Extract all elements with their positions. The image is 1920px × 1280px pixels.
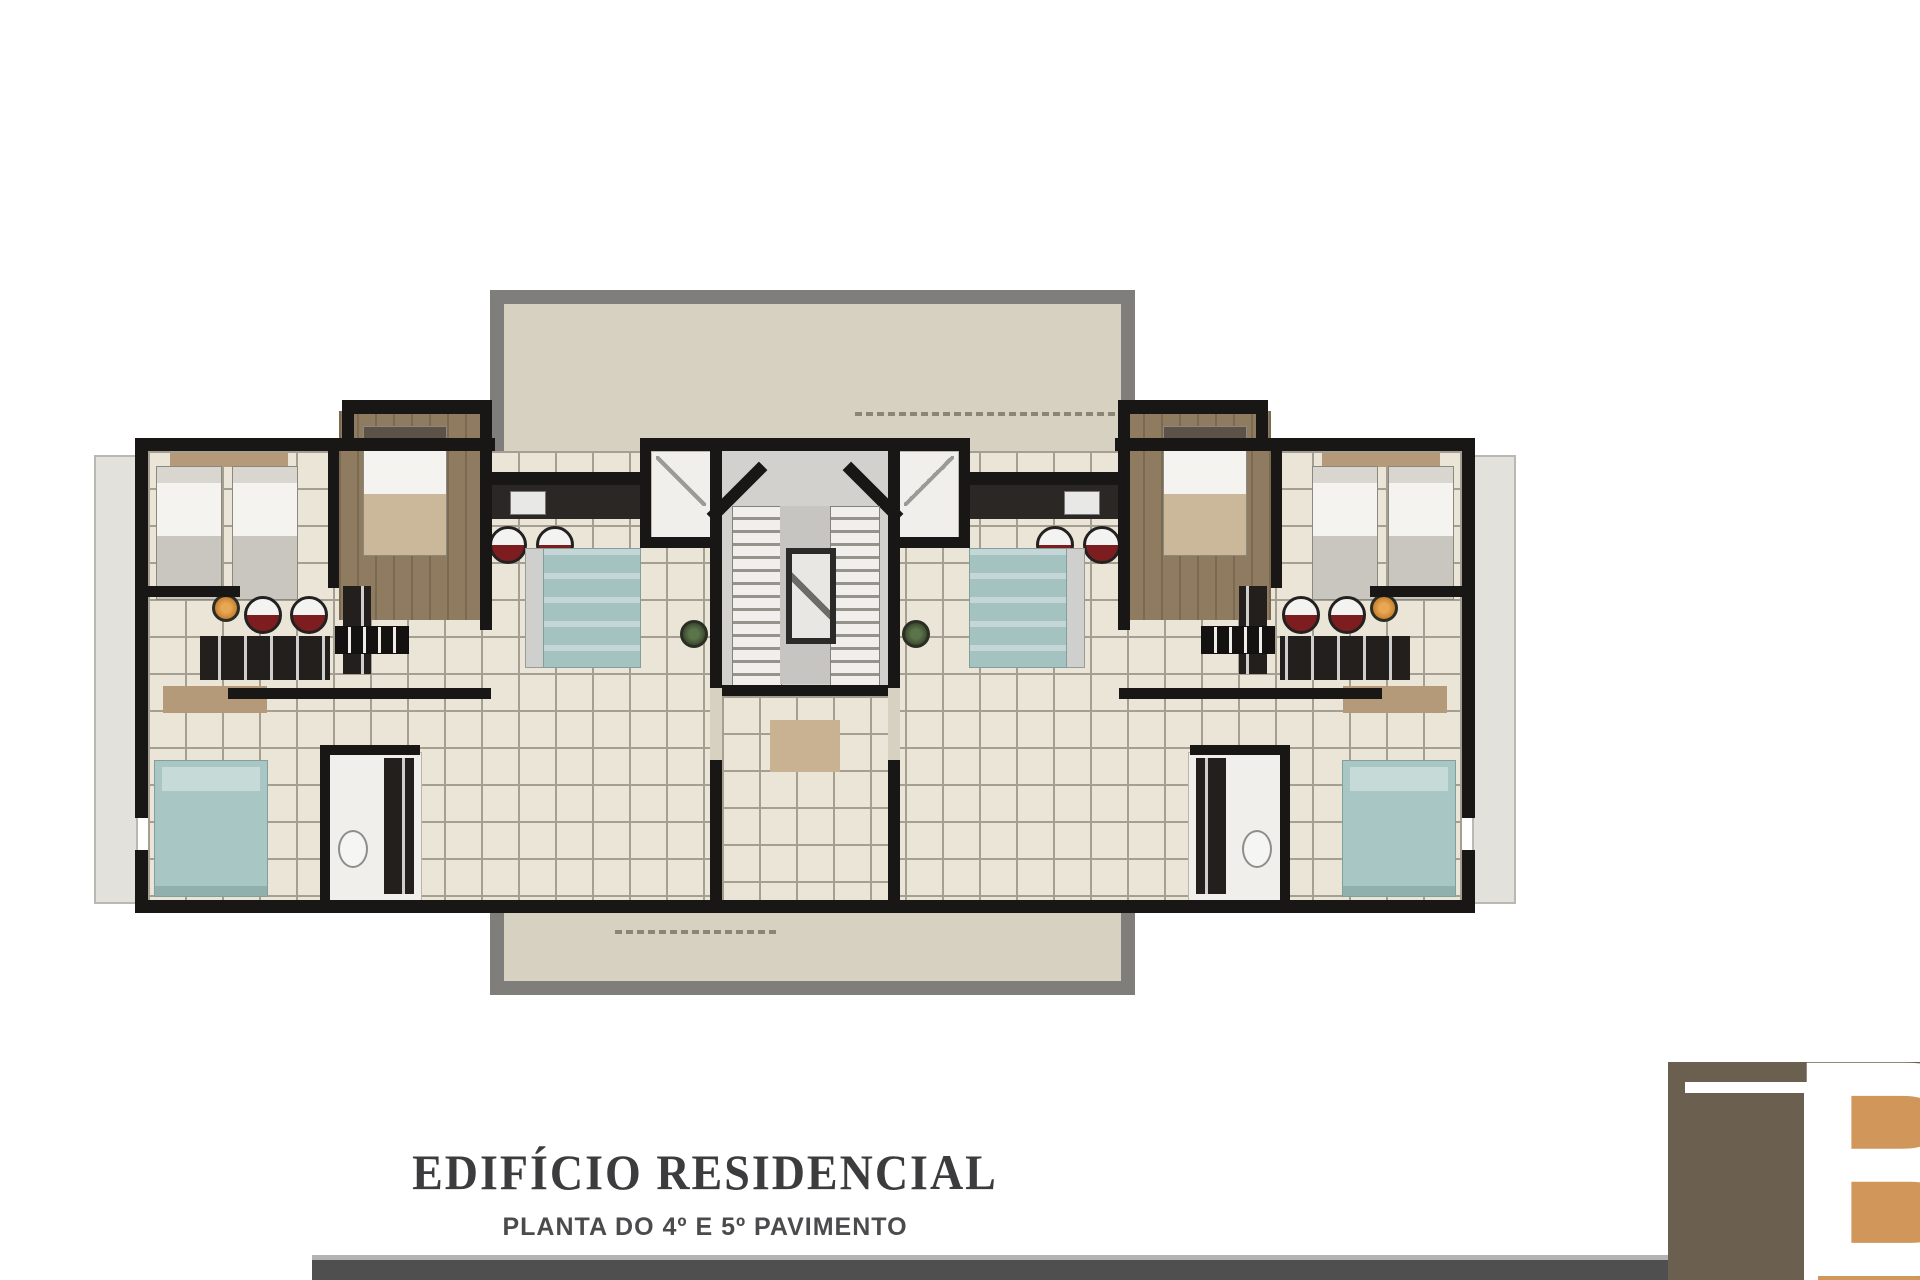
tv-console (1280, 636, 1410, 680)
wall (1370, 586, 1475, 597)
plant-pot (1370, 594, 1398, 622)
left-wing (80, 290, 805, 995)
bar-stool (290, 596, 328, 634)
sofa-back (1065, 548, 1085, 668)
toilet (1242, 830, 1272, 868)
bed-blanket (1164, 494, 1246, 555)
teal-sofa (543, 548, 641, 668)
wall (888, 537, 970, 548)
page: EDIFÍCIO RESIDENCIAL PLANTA DO 4º E 5º P… (0, 0, 1920, 1280)
wall (710, 438, 722, 688)
single-bed (1312, 466, 1378, 600)
bathroom-floor (651, 451, 712, 539)
plan-title: EDIFÍCIO RESIDENCIAL (355, 1144, 1055, 1201)
plant-pot (212, 594, 240, 622)
plant-pot (680, 620, 708, 648)
wall (888, 760, 900, 913)
wall (135, 438, 495, 451)
wall (1115, 438, 1475, 451)
kitchen-counter (491, 485, 641, 519)
drawing-title-block: EDIFÍCIO RESIDENCIAL PLANTA DO 4º E 5º P… (355, 1146, 1055, 1242)
wall (888, 438, 900, 688)
bedroom-rug (170, 453, 288, 467)
plan-subtitle: PLANTA DO 4º E 5º PAVIMENTO (355, 1213, 1055, 1242)
wall (1118, 400, 1268, 414)
bar-stool (1083, 526, 1121, 564)
elevator-symbol (792, 554, 830, 638)
wall (490, 472, 650, 485)
bed-pillow (233, 467, 297, 483)
wall (1119, 688, 1382, 699)
wall (328, 438, 339, 588)
wall (1280, 745, 1290, 903)
right-wing (805, 290, 1530, 995)
closet (335, 626, 409, 654)
logo-letter-b: B (1786, 1062, 1920, 1280)
wall (342, 400, 492, 414)
corridor-mat (770, 720, 840, 772)
wall (710, 760, 722, 913)
wall (1190, 745, 1290, 755)
bed-foot (1343, 886, 1455, 896)
wall (1462, 438, 1475, 818)
wall (645, 438, 805, 451)
wall (342, 400, 354, 450)
teal-sofa (969, 548, 1067, 668)
side-balcony-ledge (1472, 455, 1516, 904)
company-logo: B (1668, 1062, 1920, 1280)
wall (960, 472, 1120, 485)
bath-vanity (384, 758, 414, 894)
wall (640, 438, 651, 548)
wall (135, 586, 240, 597)
stair-flight (830, 506, 880, 686)
bed-pillow (1350, 767, 1449, 791)
bed-foot (155, 886, 267, 896)
side-balcony-ledge (94, 455, 138, 904)
kitchen-sink (1064, 491, 1100, 515)
bedroom-rug (1322, 453, 1440, 467)
wall (1271, 438, 1282, 588)
wall (959, 438, 970, 548)
bed-pillow (1313, 467, 1377, 483)
bar-stool (1282, 596, 1320, 634)
kitchen-sink (510, 491, 546, 515)
tv-console (200, 636, 330, 680)
wall (228, 688, 491, 699)
teal-double-bed (154, 760, 268, 897)
wall (722, 685, 888, 696)
single-bed (156, 466, 222, 600)
bar-stool (489, 526, 527, 564)
wall (805, 438, 965, 451)
bed-blanket (233, 536, 297, 599)
wall (320, 745, 420, 755)
wall (480, 400, 492, 630)
wall (1256, 400, 1268, 450)
closet (1201, 626, 1275, 654)
bar-stool (1328, 596, 1366, 634)
plant-pot (902, 620, 930, 648)
stair-flight (732, 506, 782, 686)
single-bed (232, 466, 298, 600)
wall (320, 745, 330, 903)
floor-plan (80, 290, 1530, 995)
wall (135, 900, 805, 913)
bed-blanket (364, 494, 446, 555)
wall (135, 438, 148, 818)
shower-glass (656, 456, 706, 506)
bathroom-floor (898, 451, 959, 539)
elevator-shaft (786, 548, 836, 644)
bed-pillow (162, 767, 261, 791)
kitchen-counter (969, 485, 1119, 519)
bed-pillow (157, 467, 221, 483)
bed-blanket (1313, 536, 1377, 599)
single-bed (1388, 466, 1454, 600)
shower-glass (904, 456, 954, 506)
bed-pillow (1389, 467, 1453, 483)
wall (805, 900, 1475, 913)
sofa-back (525, 548, 545, 668)
wall (1118, 400, 1130, 630)
teal-double-bed (1342, 760, 1456, 897)
bar-stool (244, 596, 282, 634)
toilet (338, 830, 368, 868)
bath-vanity (1196, 758, 1226, 894)
